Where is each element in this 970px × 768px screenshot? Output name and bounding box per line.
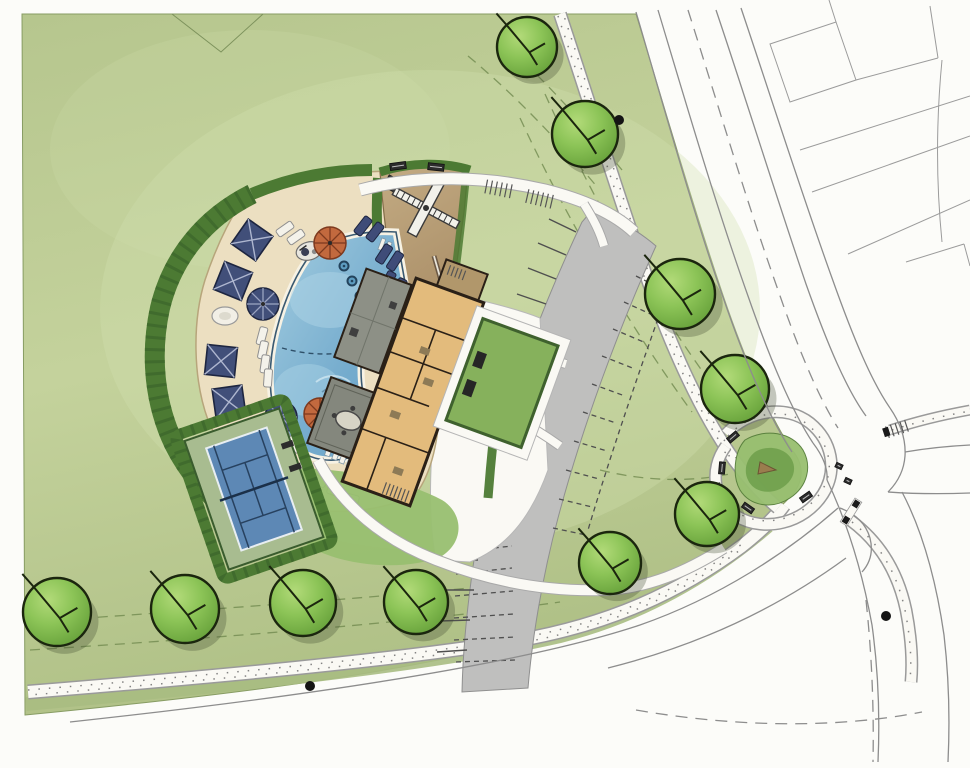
bench xyxy=(718,462,725,474)
cabana-umbrella xyxy=(205,345,238,378)
pool-bubbler xyxy=(340,262,349,271)
site-plan-page xyxy=(0,0,970,768)
survey-dot xyxy=(305,681,315,691)
sidewalk-stub-southeast xyxy=(850,520,912,682)
navy-umbrella xyxy=(247,288,279,320)
orange-umbrella xyxy=(314,227,346,259)
survey-dot xyxy=(881,611,891,621)
bench xyxy=(428,163,445,172)
lounge-chair xyxy=(263,369,272,388)
patio-table xyxy=(212,307,238,325)
pool-bubbler xyxy=(348,277,357,286)
site-plan-canvas xyxy=(0,0,970,768)
survey-dot xyxy=(614,115,624,125)
bench xyxy=(844,477,852,484)
